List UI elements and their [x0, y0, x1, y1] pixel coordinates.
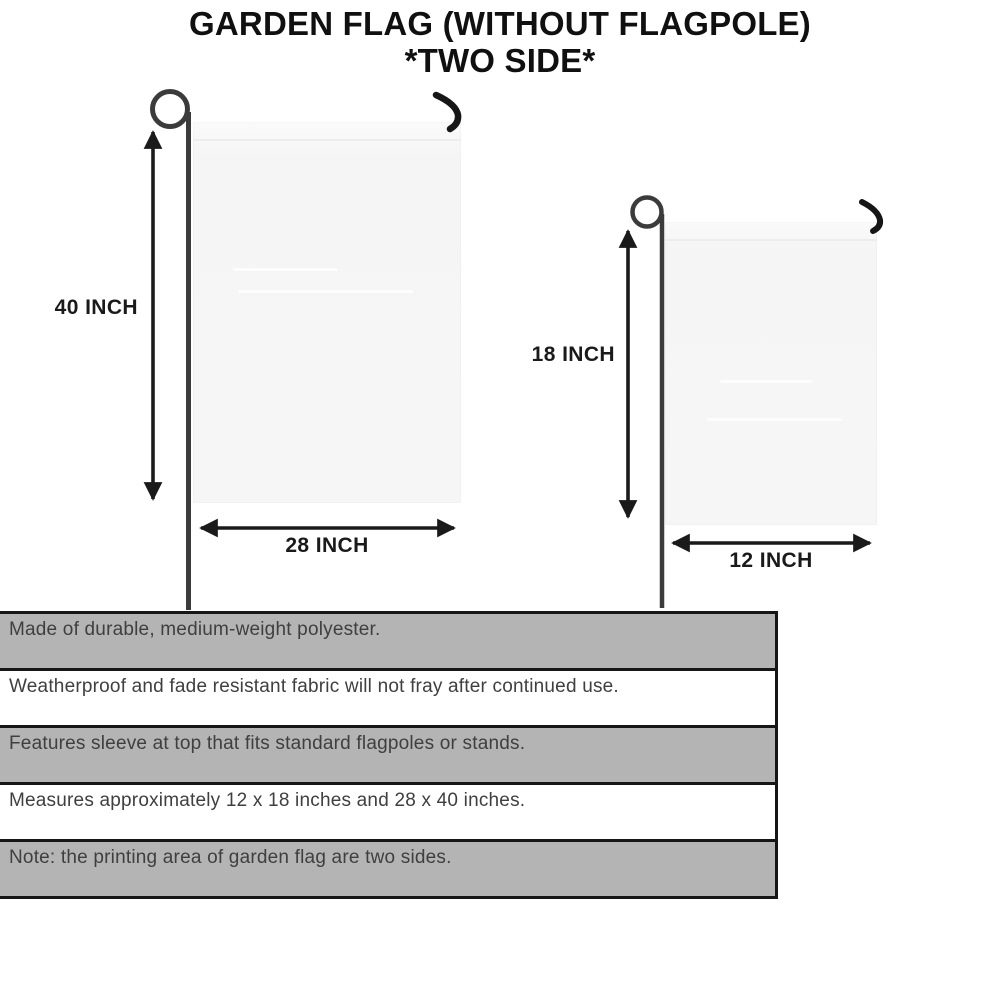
feature-row-material: Made of durable, medium-weight polyester…: [0, 611, 775, 668]
large-flag-width-label: 28 INCH: [257, 534, 397, 558]
large-flagpole-loop-icon: [153, 92, 188, 127]
feature-row-weatherproof: Weatherproof and fade resistant fabric w…: [0, 668, 775, 725]
large-flag-hanger-hook-icon: [436, 95, 458, 129]
small-flagpole-loop-icon: [633, 198, 662, 227]
small-flag-width-label: 12 INCH: [701, 549, 841, 573]
small-flag-height-label: 18 INCH: [515, 343, 615, 367]
small-flag-hanger-hook-icon: [862, 202, 880, 231]
large-flag-height-label: 40 INCH: [38, 296, 138, 320]
feature-row-measures: Measures approximately 12 x 18 inches an…: [0, 782, 775, 839]
garden-flag-infographic: GARDEN FLAG (WITHOUT FLAGPOLE) *TWO SIDE…: [0, 0, 1000, 1000]
features-table: Made of durable, medium-weight polyester…: [0, 611, 778, 899]
feature-row-sleeve: Features sleeve at top that fits standar…: [0, 725, 775, 782]
feature-row-note: Note: the printing area of garden flag a…: [0, 839, 775, 899]
